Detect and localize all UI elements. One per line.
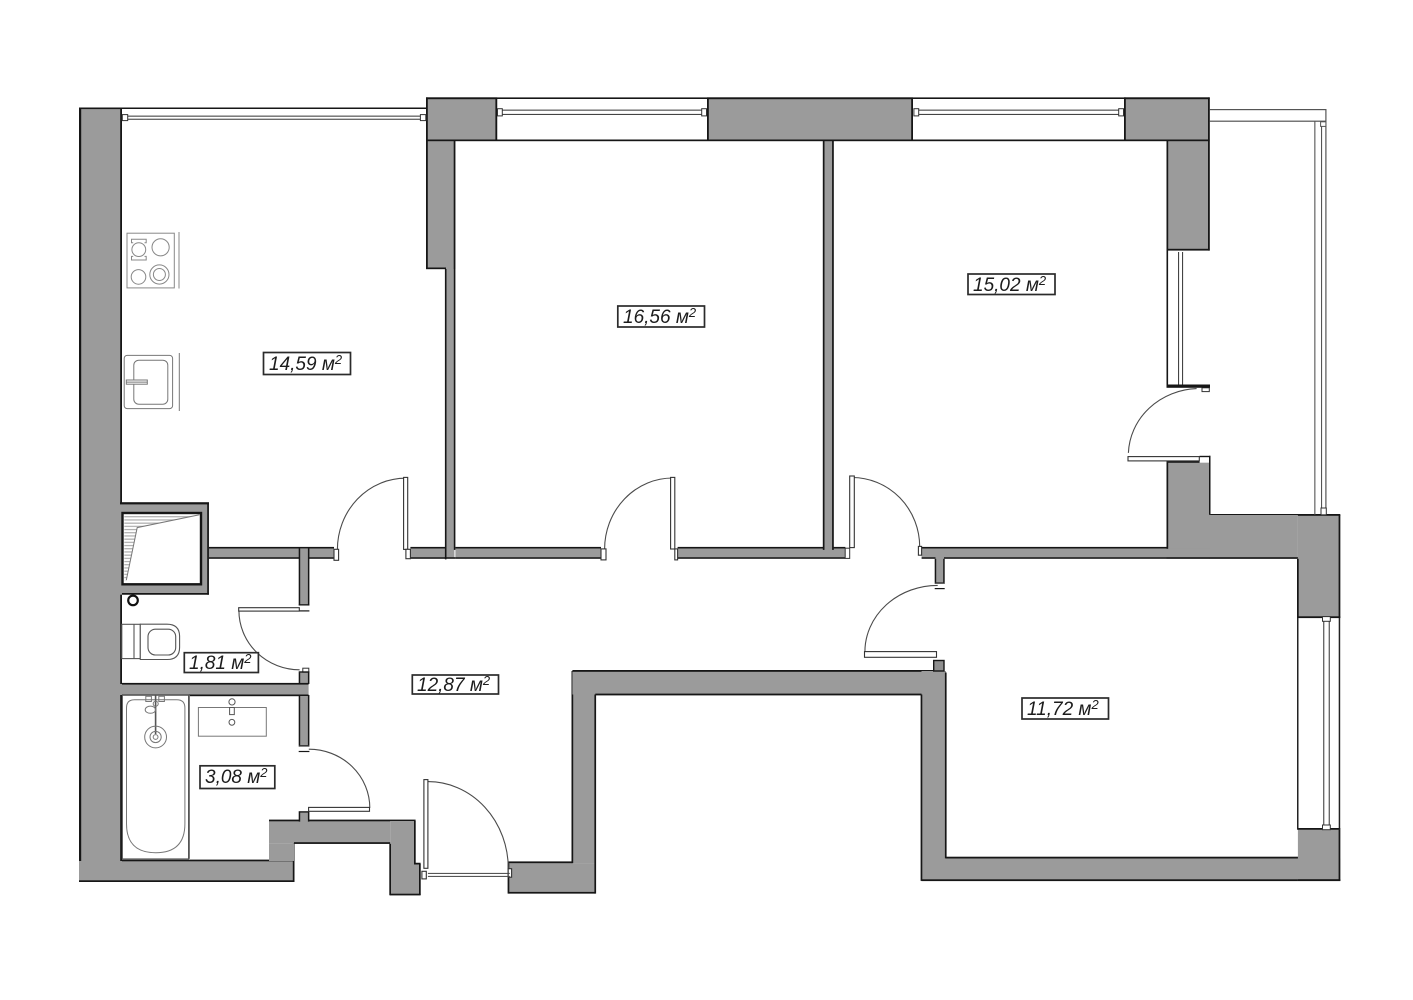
svg-text:16,56 м2: 16,56 м2: [623, 305, 697, 328]
svg-text:11,72 м2: 11,72 м2: [1027, 697, 1099, 720]
svg-text:14,59 м2: 14,59 м2: [269, 352, 343, 375]
svg-text:3,08 м2: 3,08 м2: [205, 765, 268, 788]
svg-text:12,87 м2: 12,87 м2: [417, 673, 491, 696]
svg-text:15,02 м2: 15,02 м2: [973, 273, 1047, 296]
svg-text:1,81 м2: 1,81 м2: [189, 651, 252, 674]
